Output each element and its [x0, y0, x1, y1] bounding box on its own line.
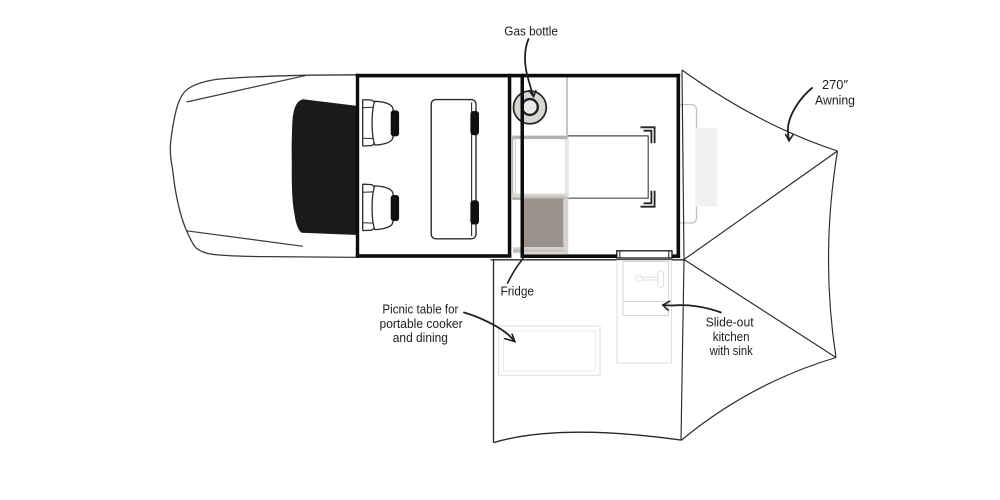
svg-text:Picnic table for: Picnic table for [382, 302, 459, 317]
svg-text:kitchen: kitchen [713, 329, 750, 344]
svg-text:Slide-out: Slide-out [706, 314, 754, 329]
svg-text:Awning: Awning [815, 93, 855, 108]
svg-text:270″: 270″ [822, 77, 848, 92]
svg-text:portable cooker: portable cooker [380, 316, 464, 331]
svg-text:Gas bottle: Gas bottle [504, 24, 558, 39]
svg-text:with sink: with sink [709, 343, 753, 358]
svg-text:Fridge: Fridge [501, 284, 535, 299]
svg-text:and dining: and dining [393, 330, 448, 345]
